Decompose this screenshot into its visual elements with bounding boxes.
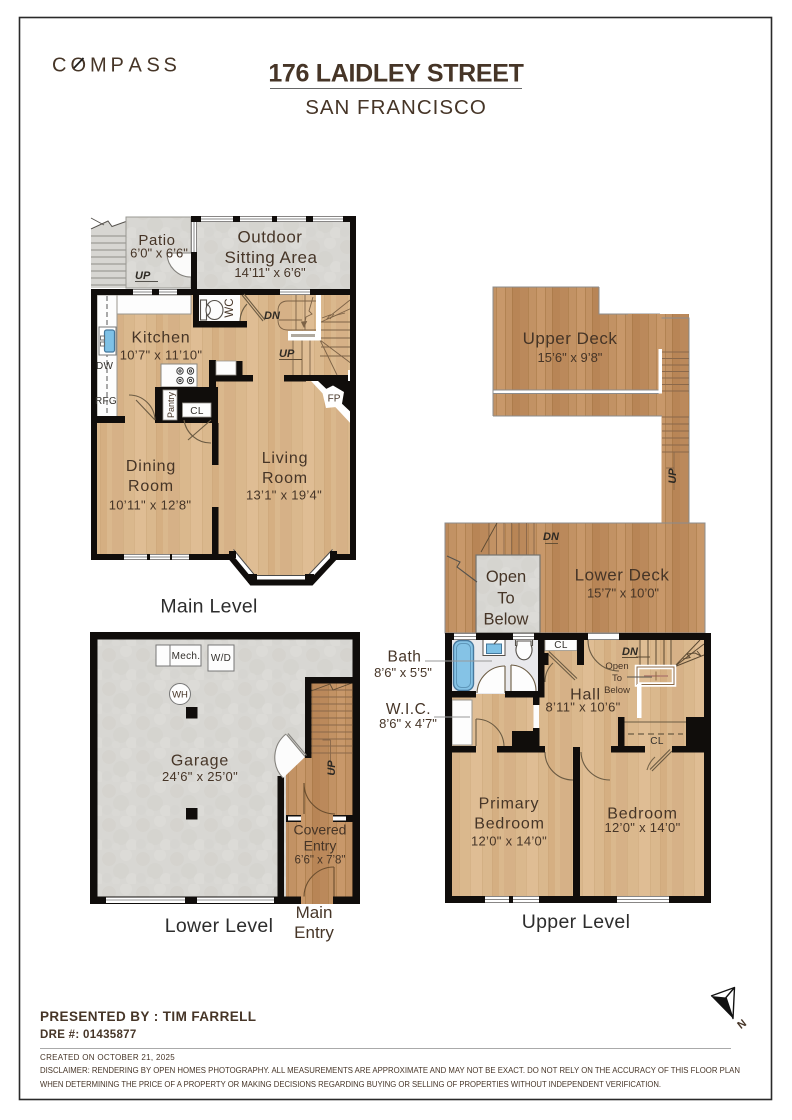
svg-text:M: M <box>90 55 107 77</box>
svg-text:8’6" x 4’7": 8’6" x 4’7" <box>379 716 437 731</box>
svg-text:6’0" x 6’6": 6’0" x 6’6" <box>130 246 188 261</box>
svg-text:DRE #: 01435877: DRE #: 01435877 <box>40 1029 137 1041</box>
svg-text:UP: UP <box>135 270 151 282</box>
svg-text:Mech.: Mech. <box>172 651 201 662</box>
svg-text:CL: CL <box>554 640 568 651</box>
svg-text:P: P <box>111 55 124 77</box>
svg-text:O: O <box>71 55 87 77</box>
svg-text:PRESENTED BY : TIM FARRELL: PRESENTED BY : TIM FARRELL <box>40 1009 256 1024</box>
svg-text:15’6" x 9’8": 15’6" x 9’8" <box>538 350 603 365</box>
svg-text:To: To <box>612 673 622 684</box>
svg-text:Entry: Entry <box>294 923 334 942</box>
svg-text:Pantry: Pantry <box>166 391 176 418</box>
svg-text:CREATED ON OCTOBER 21, 2025: CREATED ON OCTOBER 21, 2025 <box>40 1053 175 1062</box>
svg-text:UP: UP <box>667 468 679 484</box>
svg-text:Primary: Primary <box>479 796 540 813</box>
svg-text:10’7" x 11’10": 10’7" x 11’10" <box>120 348 203 363</box>
svg-text:S: S <box>147 55 160 77</box>
svg-text:Below: Below <box>484 611 529 629</box>
svg-text:Main: Main <box>296 903 333 922</box>
svg-text:24’6" x 25’0": 24’6" x 25’0" <box>162 769 238 784</box>
svg-text:Room: Room <box>128 478 174 495</box>
svg-text:Outdoor: Outdoor <box>238 228 303 247</box>
svg-text:DN: DN <box>264 310 281 322</box>
svg-text:To: To <box>497 590 514 608</box>
svg-text:Dining: Dining <box>126 458 176 475</box>
svg-text:Garage: Garage <box>171 753 229 770</box>
svg-text:C: C <box>52 55 66 77</box>
svg-text:RFG: RFG <box>95 396 117 407</box>
svg-text:Lower Deck: Lower Deck <box>575 566 670 585</box>
svg-text:Lower Level: Lower Level <box>165 915 273 937</box>
svg-text:13’1" x 19’4": 13’1" x 19’4" <box>246 488 322 503</box>
svg-text:WH: WH <box>172 690 188 701</box>
svg-text:Open: Open <box>605 661 628 672</box>
svg-text:Covered: Covered <box>294 822 347 838</box>
svg-text:8’6" x 5’5": 8’6" x 5’5" <box>374 665 432 680</box>
svg-text:S: S <box>164 55 177 77</box>
svg-text:SAN FRANCISCO: SAN FRANCISCO <box>305 96 487 119</box>
svg-text:Upper Deck: Upper Deck <box>523 329 618 348</box>
svg-text:8’11" x 10’6": 8’11" x 10’6" <box>545 700 620 715</box>
svg-text:Main Level: Main Level <box>160 596 257 618</box>
svg-text:WHEN DETERMINING THE PRICE OF: WHEN DETERMINING THE PRICE OF A PROPERTY… <box>40 1079 661 1089</box>
svg-text:Below: Below <box>604 685 630 696</box>
svg-text:Bedroom: Bedroom <box>474 816 545 833</box>
svg-text:6’6" x 7’8": 6’6" x 7’8" <box>295 855 346 867</box>
svg-text:Open: Open <box>486 568 526 586</box>
svg-text:10’11" x 12’8": 10’11" x 12’8" <box>109 498 192 513</box>
svg-text:DN: DN <box>622 646 639 658</box>
svg-text:Entry: Entry <box>304 838 337 854</box>
svg-text:176 LAIDLEY STREET: 176 LAIDLEY STREET <box>268 60 523 88</box>
svg-text:14’11" x 6’6": 14’11" x 6’6" <box>234 265 306 280</box>
svg-text:15’7" x 10’0": 15’7" x 10’0" <box>587 586 659 601</box>
svg-text:WC: WC <box>224 298 236 317</box>
svg-text:DISCLAIMER: RENDERING BY OPEN: DISCLAIMER: RENDERING BY OPEN HOMES PHOT… <box>40 1065 740 1075</box>
svg-text:Bath: Bath <box>388 649 422 666</box>
svg-text:CL: CL <box>650 736 664 747</box>
svg-text:12’0" x 14’0": 12’0" x 14’0" <box>604 820 680 835</box>
svg-text:CL: CL <box>190 406 204 417</box>
svg-text:UP: UP <box>326 760 338 776</box>
svg-text:DN: DN <box>543 531 560 543</box>
svg-text:Room: Room <box>262 470 308 487</box>
svg-text:FP: FP <box>328 394 341 405</box>
svg-text:Kitchen: Kitchen <box>132 330 191 347</box>
svg-text:Living: Living <box>262 450 309 467</box>
svg-text:W/D: W/D <box>211 653 231 664</box>
svg-text:12’0" x 14’0": 12’0" x 14’0" <box>471 834 547 849</box>
svg-text:Upper Level: Upper Level <box>522 911 630 933</box>
svg-text:DW: DW <box>96 361 114 372</box>
svg-text:A: A <box>129 55 143 77</box>
svg-text:UP: UP <box>279 348 295 360</box>
